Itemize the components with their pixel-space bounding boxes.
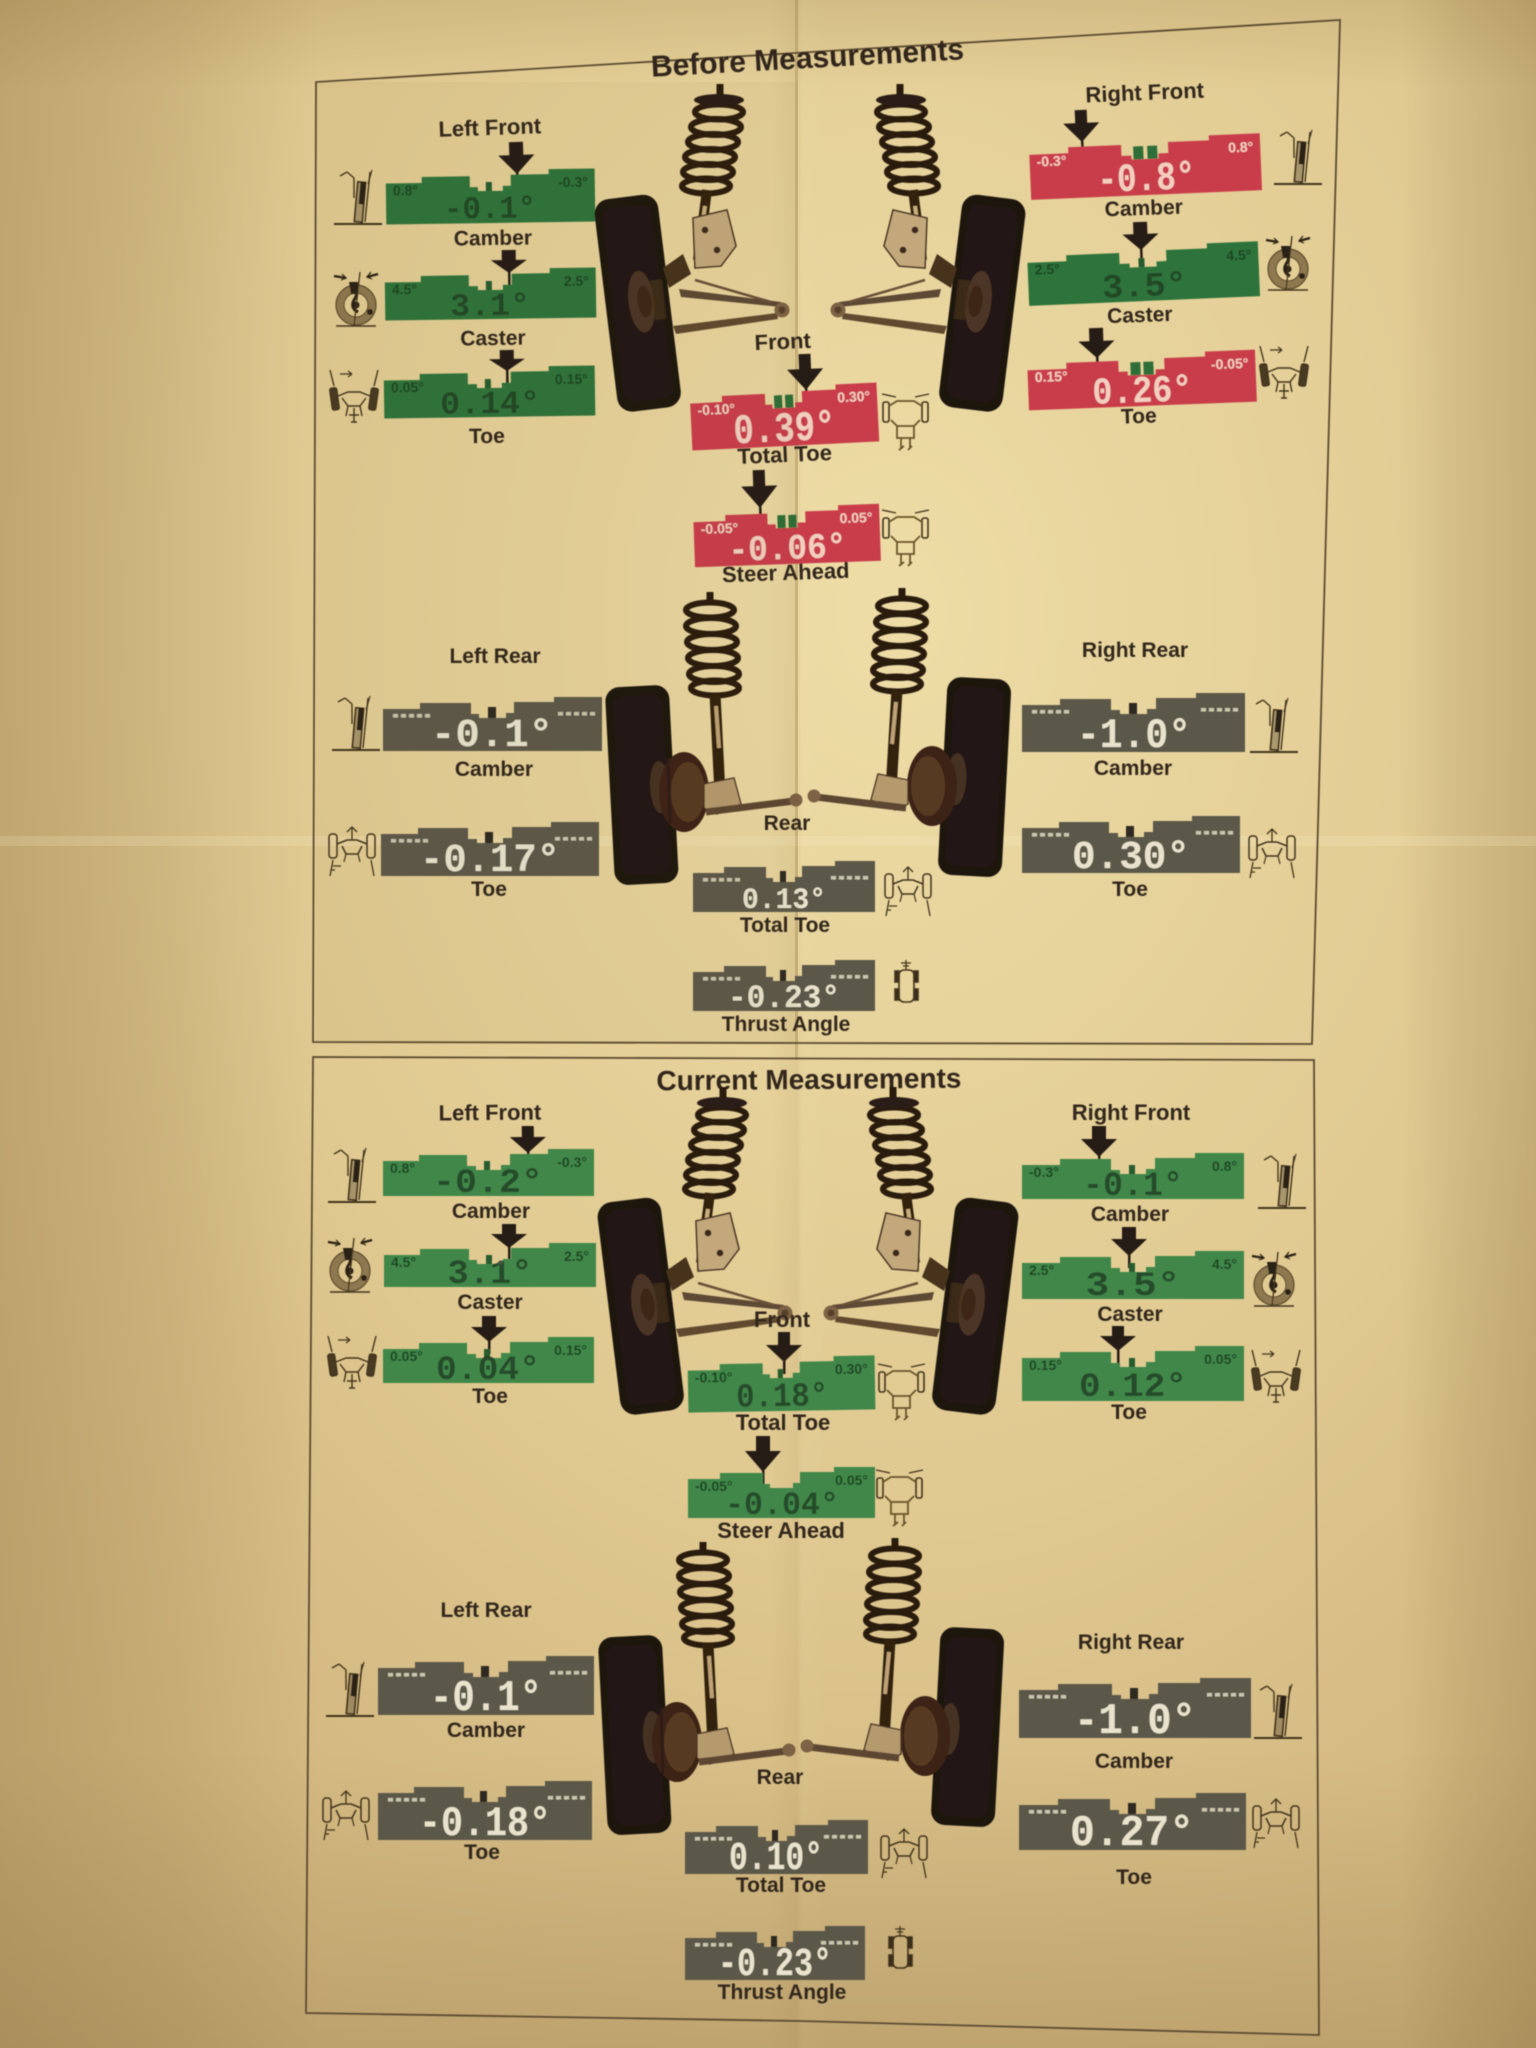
svg-text:2.5°: 2.5°: [1034, 261, 1060, 278]
svg-text:Toe: Toe: [1120, 404, 1157, 428]
svg-text:0.05°: 0.05°: [839, 509, 872, 526]
svg-text:-0.3°: -0.3°: [1036, 152, 1066, 169]
svg-text:3.5°: 3.5°: [1101, 267, 1188, 309]
svg-text:2.5°: 2.5°: [564, 1248, 589, 1264]
svg-text:4.5°: 4.5°: [391, 1254, 416, 1270]
svg-text:Right Front: Right Front: [1072, 1100, 1191, 1125]
svg-text:0.30°: 0.30°: [1072, 836, 1190, 881]
svg-text:Left Front: Left Front: [438, 1100, 542, 1126]
svg-text:3.5°: 3.5°: [1086, 1268, 1181, 1306]
svg-text:0.05°: 0.05°: [390, 1348, 423, 1364]
svg-text:Left Rear: Left Rear: [440, 1599, 531, 1622]
svg-text:0.05°: 0.05°: [835, 1472, 868, 1488]
svg-text:0.27°: 0.27°: [1070, 1809, 1194, 1859]
svg-text:Total Toe: Total Toe: [736, 1874, 826, 1897]
svg-text:Total Toe: Total Toe: [736, 1410, 831, 1435]
svg-text:Camber: Camber: [1094, 757, 1172, 780]
svg-text:0.8°: 0.8°: [1212, 1158, 1237, 1174]
svg-text:-0.2°: -0.2°: [433, 1165, 543, 1203]
svg-text:Right Rear: Right Rear: [1078, 1631, 1184, 1654]
svg-text:Right Rear: Right Rear: [1082, 639, 1188, 662]
svg-text:Camber: Camber: [452, 1200, 530, 1223]
svg-text:Steer Ahead: Steer Ahead: [717, 1518, 845, 1543]
svg-text:Toe: Toe: [1111, 1401, 1147, 1424]
svg-text:-0.3°: -0.3°: [1029, 1164, 1059, 1180]
svg-text:0.15°: 0.15°: [1029, 1357, 1062, 1373]
svg-text:Toe: Toe: [472, 1385, 508, 1408]
svg-text:Camber: Camber: [1091, 1203, 1169, 1226]
svg-text:Toe: Toe: [464, 1841, 500, 1864]
svg-text:Rear: Rear: [757, 1766, 804, 1789]
svg-text:-0.1°: -0.1°: [430, 1674, 542, 1724]
svg-text:4.5°: 4.5°: [1226, 246, 1252, 263]
svg-text:0.30°: 0.30°: [835, 1361, 868, 1378]
svg-text:2.5°: 2.5°: [1029, 1262, 1054, 1278]
svg-text:Caster: Caster: [1097, 1303, 1162, 1326]
svg-text:Current Measurements: Current Measurements: [656, 1063, 961, 1097]
svg-text:-0.10°: -0.10°: [695, 1369, 733, 1386]
svg-text:Right Front: Right Front: [1085, 78, 1205, 108]
svg-text:0.15°: 0.15°: [554, 1342, 587, 1358]
svg-text:Toe: Toe: [1116, 1866, 1152, 1889]
svg-text:0.8°: 0.8°: [390, 1160, 415, 1176]
svg-text:Camber: Camber: [1095, 1750, 1173, 1773]
svg-text:-0.1°: -0.1°: [1083, 1168, 1183, 1206]
svg-text:0.8°: 0.8°: [1228, 138, 1254, 155]
svg-text:Caster: Caster: [457, 1291, 522, 1314]
svg-text:4.5°: 4.5°: [1212, 1256, 1237, 1272]
svg-text:3.1°: 3.1°: [448, 1256, 533, 1294]
svg-text:Camber: Camber: [447, 1719, 525, 1742]
svg-text:-0.3°: -0.3°: [557, 1154, 587, 1170]
svg-text:0.15°: 0.15°: [1034, 368, 1067, 385]
svg-text:-0.05°: -0.05°: [1211, 355, 1249, 372]
svg-text:-1.0°: -1.0°: [1077, 712, 1191, 760]
svg-text:Front: Front: [754, 1307, 811, 1332]
svg-text:Caster: Caster: [1107, 303, 1173, 328]
svg-text:0.30°: 0.30°: [837, 388, 871, 406]
svg-text:Camber: Camber: [1104, 196, 1183, 222]
svg-text:Toe: Toe: [1112, 878, 1148, 901]
svg-text:Thrust Angle: Thrust Angle: [718, 1981, 847, 2004]
svg-text:0.05°: 0.05°: [1204, 1351, 1237, 1367]
svg-text:-1.0°: -1.0°: [1074, 1697, 1196, 1747]
